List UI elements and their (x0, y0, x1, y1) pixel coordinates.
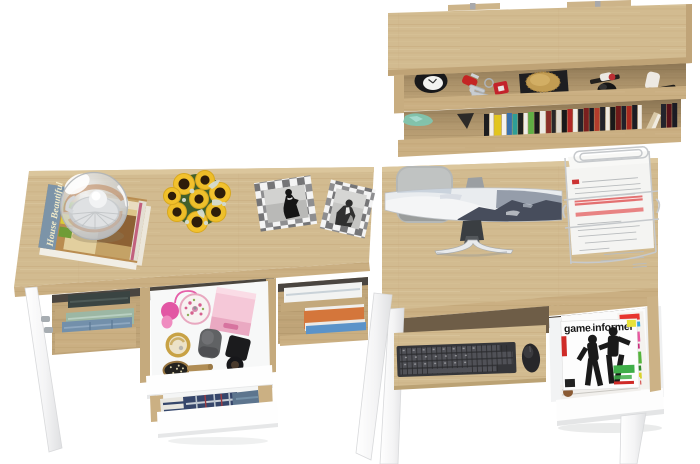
svg-text:game.informer: game.informer (564, 321, 634, 335)
